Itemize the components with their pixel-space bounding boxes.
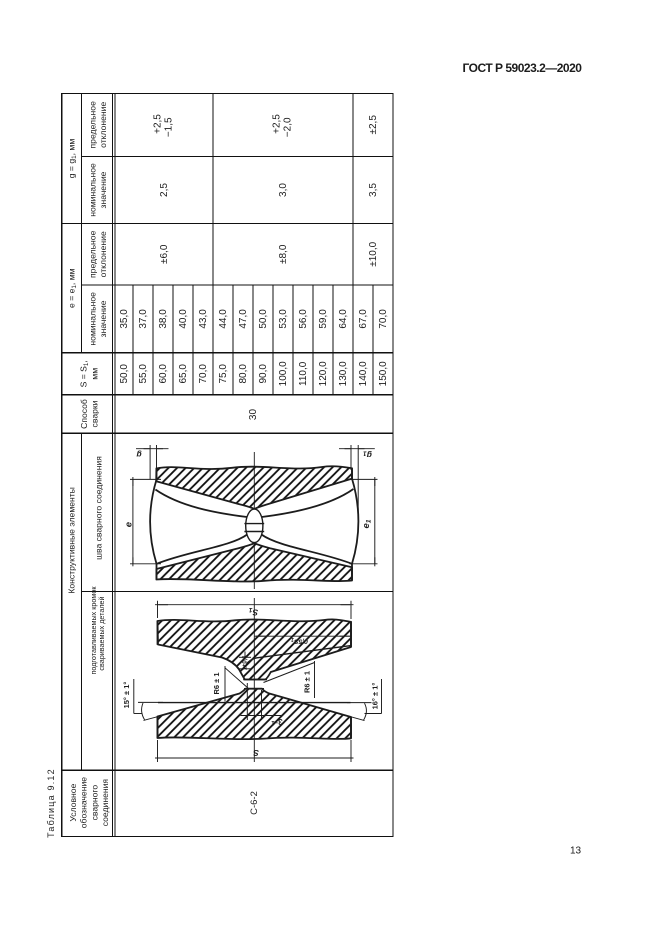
svg-text:55,0: 55,0 (138, 364, 149, 384)
svg-text:−1,5: −1,5 (163, 117, 174, 137)
svg-text:15° ± 1°: 15° ± 1° (122, 682, 131, 709)
svg-text:38,0: 38,0 (158, 309, 169, 329)
svg-text:3,5: 3,5 (368, 183, 379, 197)
svg-text:предельное: предельное (87, 101, 97, 149)
svg-text:60,0: 60,0 (158, 364, 169, 384)
svg-text:С-6-2: С-6-2 (249, 791, 260, 815)
svg-text:мм: мм (90, 368, 100, 380)
svg-text:Условное: Условное (68, 783, 78, 821)
svg-text:2,5: 2,5 (159, 183, 170, 197)
svg-text:номинальное: номинальное (87, 163, 97, 217)
svg-text:16° ± 1°: 16° ± 1° (370, 683, 379, 710)
svg-text:75,0: 75,0 (218, 364, 229, 384)
svg-text:90,0: 90,0 (258, 364, 269, 384)
svg-text:соединения: соединения (100, 779, 110, 827)
svg-text:1±0,1: 1±0,1 (242, 655, 248, 671)
svg-text:47,0: 47,0 (238, 309, 249, 329)
svg-text:130,0: 130,0 (338, 361, 349, 386)
svg-text:3,0: 3,0 (278, 183, 289, 197)
svg-text:43,0: 43,0 (198, 309, 209, 329)
svg-text:37,0: 37,0 (138, 309, 149, 329)
svg-text:13: 13 (570, 846, 582, 857)
svg-text:70,0: 70,0 (378, 309, 389, 329)
svg-text:сварного: сварного (89, 785, 99, 821)
svg-text:59,0: 59,0 (318, 309, 329, 329)
svg-text:значение: значение (98, 300, 108, 337)
svg-text:50,0: 50,0 (258, 309, 269, 329)
svg-text:56,0: 56,0 (298, 309, 309, 329)
svg-text:шва сварного соединения: шва сварного соединения (93, 456, 103, 560)
svg-text:номинальное: номинальное (87, 292, 97, 346)
svg-text:R6 ± 1: R6 ± 1 (302, 671, 311, 693)
svg-text:100,0: 100,0 (278, 361, 289, 386)
svg-text:отклонение: отклонение (98, 102, 108, 148)
svg-text:35,0: 35,0 (119, 309, 130, 329)
svg-text:обозначение: обозначение (78, 777, 88, 828)
svg-text:150,0: 150,0 (378, 361, 389, 386)
svg-text:±2,5: ±2,5 (368, 115, 379, 135)
svg-text:120,0: 120,0 (318, 361, 329, 386)
svg-text:отклонение: отклонение (98, 231, 108, 277)
svg-text:110,0: 110,0 (298, 361, 309, 386)
svg-text:S: S (253, 748, 259, 758)
svg-text:+2,5: +2,5 (272, 114, 283, 134)
svg-text:+2,5: +2,5 (152, 114, 163, 134)
svg-text:30: 30 (248, 409, 259, 421)
svg-text:40,0: 40,0 (178, 309, 189, 329)
svg-text:Способ: Способ (79, 399, 89, 429)
svg-text:44,0: 44,0 (218, 309, 229, 329)
svg-text:70,0: 70,0 (198, 364, 209, 384)
svg-text:140,0: 140,0 (358, 361, 369, 386)
svg-text:±8,0: ±8,0 (278, 244, 289, 264)
svg-text:65,0: 65,0 (178, 364, 189, 384)
svg-text:свариваемых деталей: свариваемых деталей (97, 596, 106, 670)
svg-text:R6 ± 1: R6 ± 1 (212, 672, 221, 694)
svg-text:сварки: сварки (90, 400, 100, 427)
svg-text:64,0: 64,0 (338, 309, 349, 329)
svg-text:80,0: 80,0 (238, 364, 249, 384)
svg-text:ГОСТ Р 59023.2—2020: ГОСТ Р 59023.2—2020 (463, 61, 583, 75)
svg-text:предельное: предельное (87, 230, 97, 278)
svg-text:−2,0: −2,0 (283, 117, 294, 137)
svg-text:Конструктивные элементы: Конструктивные элементы (66, 487, 76, 594)
svg-text:g: g (136, 450, 143, 460)
svg-text:значение: значение (98, 171, 108, 208)
svg-text:Таблица 9.12: Таблица 9.12 (46, 768, 56, 838)
svg-text:±6,0: ±6,0 (159, 244, 170, 264)
svg-text:±10,0: ±10,0 (368, 241, 379, 266)
svg-text:53,0: 53,0 (278, 309, 289, 329)
svg-text:67,0: 67,0 (358, 309, 369, 329)
svg-text:e: e (123, 521, 134, 527)
svg-text:50,0: 50,0 (119, 364, 130, 384)
